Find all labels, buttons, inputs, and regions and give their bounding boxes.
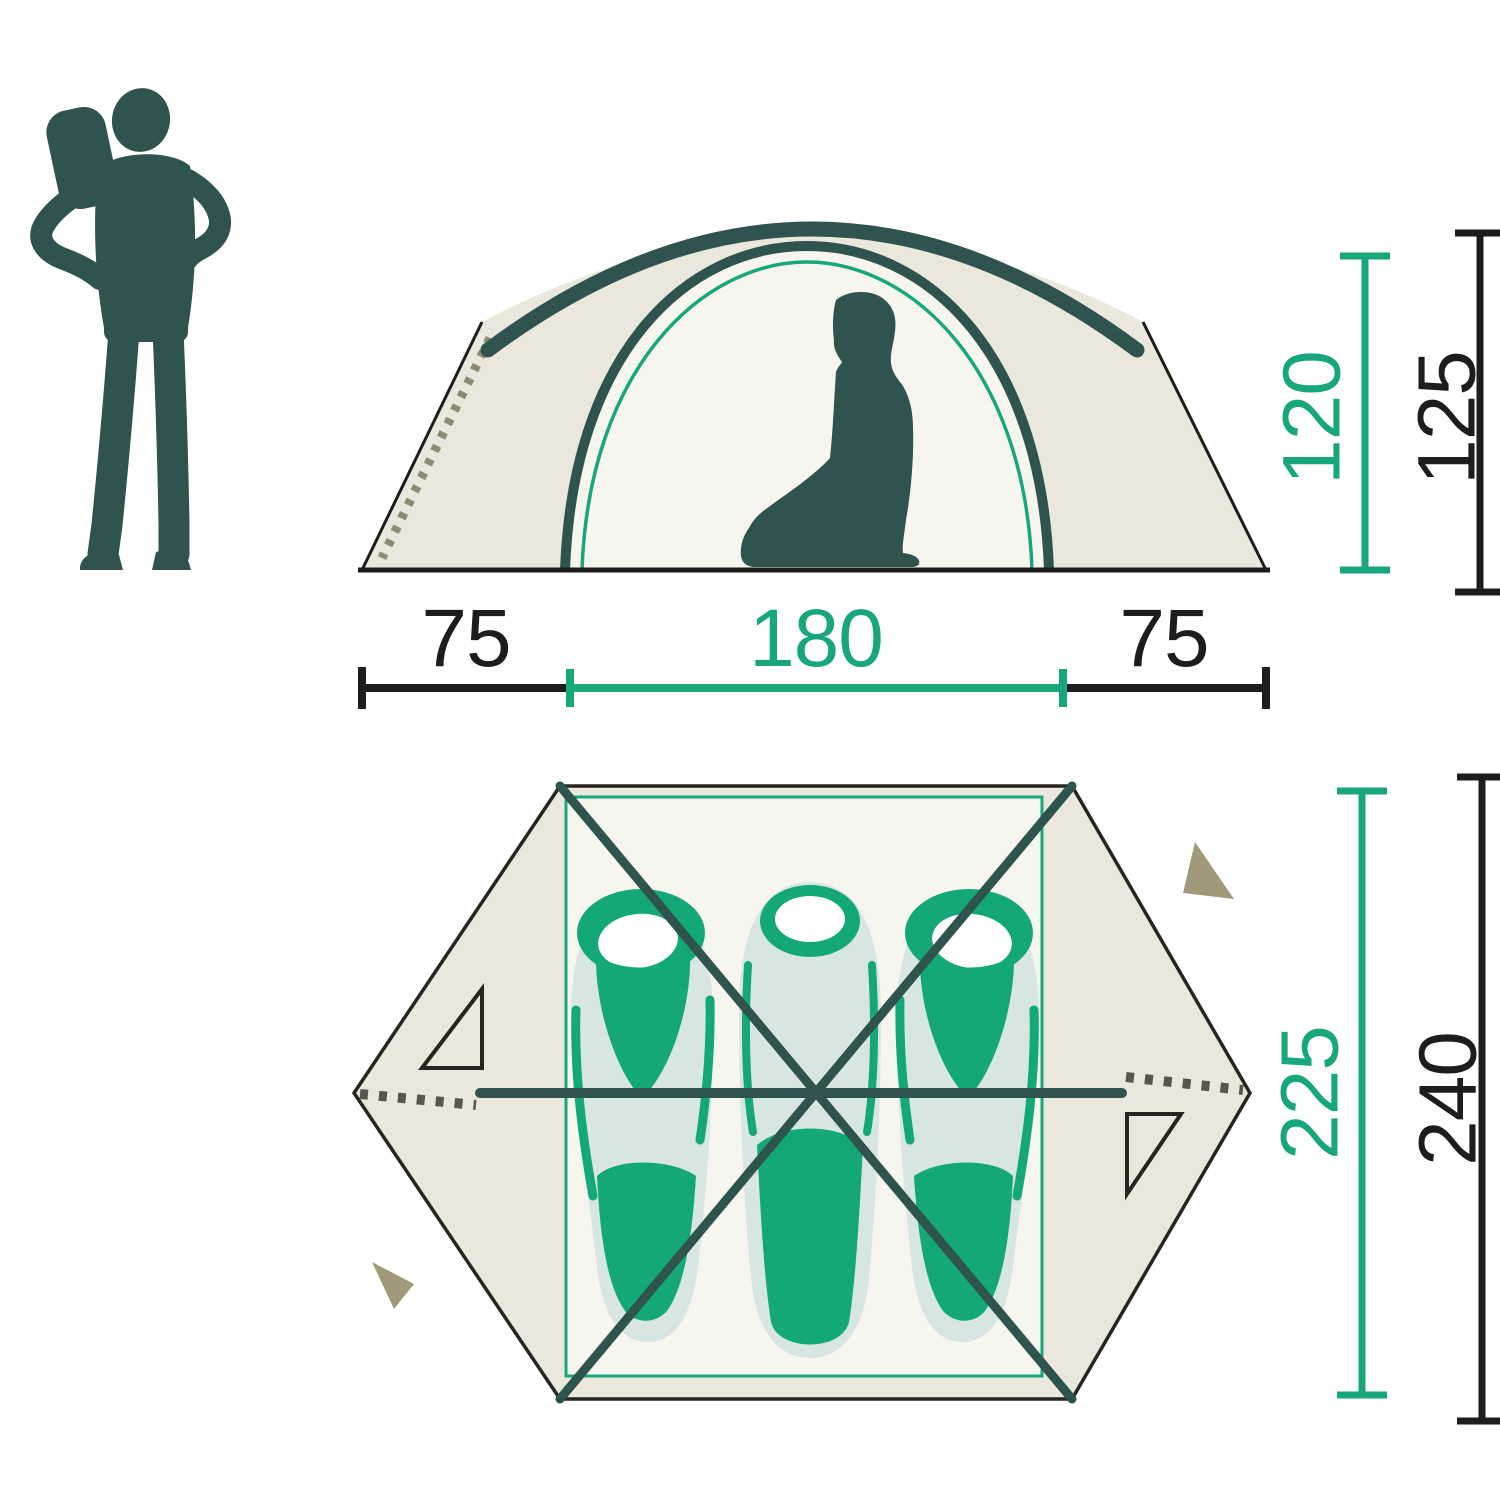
figure-leg-right [168, 330, 174, 554]
sleeping-bag-middle [739, 882, 881, 1358]
dim-label-240: 240 [1403, 1032, 1494, 1166]
scale-figure-standing [41, 83, 220, 570]
dim-label-125: 125 [1402, 351, 1493, 485]
tent-dimension-diagram: 120 125 75 180 75 [0, 0, 1500, 1500]
dim-side-height-inner: 120 [1267, 256, 1391, 570]
bag-lower-half [757, 1129, 863, 1345]
dim-top-length-outer: 240 [1403, 777, 1500, 1421]
peg-triangle-bottom-left [372, 1262, 414, 1309]
dim-label-225: 225 [1265, 1026, 1356, 1160]
dim-label-120: 120 [1267, 351, 1358, 485]
figure-arm-left [41, 180, 100, 279]
figure-head [107, 83, 175, 156]
figure-foot-left [80, 552, 123, 570]
tent-side-view [358, 229, 1270, 570]
peg-triangle-top-right [1183, 842, 1234, 899]
dim-label-75-left: 75 [421, 593, 510, 684]
dim-side-widths: 75 180 75 [362, 593, 1266, 709]
dim-side-height-outer: 125 [1402, 233, 1500, 592]
dim-label-75-right: 75 [1119, 593, 1208, 684]
tent-top-view [354, 786, 1250, 1399]
figure-leg-left [103, 330, 124, 554]
dim-top-length-inner: 225 [1265, 791, 1388, 1395]
dim-label-180: 180 [749, 593, 883, 684]
bag-face-opening [775, 896, 845, 942]
